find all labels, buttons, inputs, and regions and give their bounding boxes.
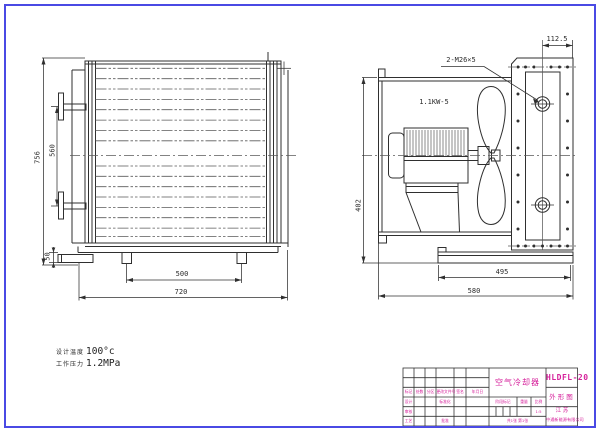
tb-stage-label: 阶段标记 xyxy=(490,400,517,404)
work-pressure-value: 1.2MPa xyxy=(86,359,120,369)
title-product-name: 空气冷却器 xyxy=(489,379,546,387)
motor-power-label: 1.1KW-5 xyxy=(414,99,454,106)
dim-front-feet-span: 500 xyxy=(167,271,197,278)
title-company-name: 中通新能源有限公司 xyxy=(546,418,578,422)
tb-row-design: 设计 xyxy=(403,400,413,404)
title-drawing-no: HLDFL-20 xyxy=(546,374,578,382)
dim-side-flange-offset: 112.5 xyxy=(542,36,572,43)
tb-weight-label: 重量 xyxy=(517,400,530,404)
dim-side-height: 402 xyxy=(356,194,363,218)
tb-row-standard: 标准化 xyxy=(436,400,453,404)
tb-row-approve: 批准 xyxy=(436,419,453,423)
cooler-front-view xyxy=(42,52,297,301)
tb-row-process: 工艺 xyxy=(403,419,413,423)
dim-side-base-inner: 495 xyxy=(487,269,517,276)
title-company-region: 江 苏 xyxy=(546,409,578,415)
drawing-sheet: 756 560 50 500 720 2-M26×5 1.1KW-5 112.5… xyxy=(0,0,600,431)
tb-scale-label: 比例 xyxy=(531,400,545,404)
dim-front-total-width: 720 xyxy=(166,289,196,296)
dim-front-bracket-span: 560 xyxy=(50,139,57,163)
tb-rev-header-docno: 更改文件号 xyxy=(436,390,453,394)
tb-row-check: 审核 xyxy=(403,410,413,414)
tb-rev-header-count: 处数 xyxy=(414,390,424,394)
dim-side-base-total: 580 xyxy=(459,288,489,295)
tb-sheet-info: 共1张 第1张 xyxy=(490,419,544,423)
tb-rev-header-sign: 签名 xyxy=(454,390,465,394)
tb-rev-header-zone: 分区 xyxy=(425,390,435,394)
cooler-side-view xyxy=(362,40,579,300)
tb-rev-header-date: 年月日 xyxy=(467,390,489,394)
work-pressure-label: 工作压力 xyxy=(56,362,84,368)
tb-rev-header-mark: 标记 xyxy=(403,390,413,394)
design-temp-label: 设计温度 xyxy=(56,350,84,356)
tb-scale-value: 1:5 xyxy=(531,410,545,414)
dim-front-stub: 50 xyxy=(45,249,52,265)
title-sheet-name: 外形图 xyxy=(546,394,578,401)
thread-callout: 2-M26×5 xyxy=(437,57,485,64)
design-temp-value: 100°c xyxy=(86,347,115,357)
dim-front-total-height: 756 xyxy=(35,146,42,170)
